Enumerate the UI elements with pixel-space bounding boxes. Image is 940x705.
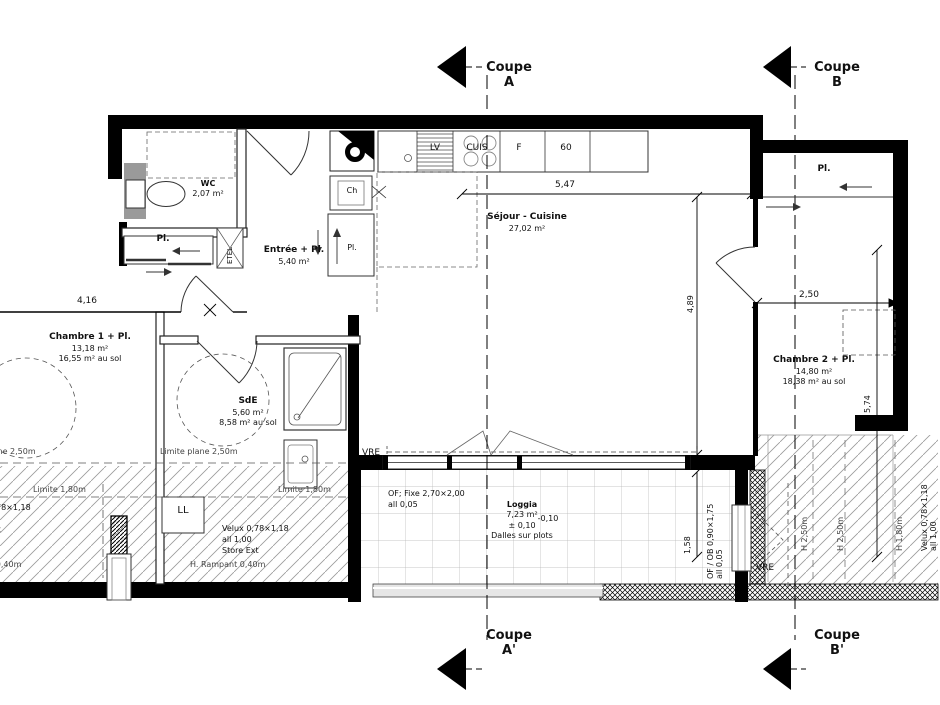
- vre-label-top: VRE: [356, 448, 386, 460]
- limit-plane-chambre1: Limite plane 2,50m: [0, 447, 36, 457]
- dim-4-89: 4,89: [686, 295, 695, 313]
- washing-machine-label: LL: [164, 504, 202, 517]
- rampant-mid: H. Rampant 0,40m: [190, 560, 265, 570]
- velux-note-mid: Velux 0,78×1,18 all 1,00 Store Ext: [222, 524, 289, 556]
- bay-window: [383, 431, 697, 470]
- dim-4-16: 4,16: [66, 296, 108, 308]
- side-window-note: OF / OB 0,90×1,75 all 0,05: [706, 504, 724, 579]
- floor-plan: Coupe A Coupe B Coupe A' Coupe B' WC 2,0…: [0, 0, 940, 705]
- section-arrow-icon: [763, 46, 791, 88]
- room-label-sde: SdE 5,60 m² 8,58 m² au sol: [188, 396, 308, 428]
- kitchen-label-cuis: CUIS: [459, 143, 495, 155]
- limit-180-mid: Limite 1,80m: [278, 485, 331, 495]
- loggia-rail: [373, 584, 603, 597]
- velux-post: [107, 516, 131, 600]
- section-label-b-top: Coupe B: [802, 61, 872, 91]
- drain-icon: [348, 145, 363, 160]
- velux-note-right: Velux 0,78×1,18 all 1,00: [920, 484, 938, 551]
- toilet-cistern-icon: [126, 180, 145, 208]
- section-arrow-icon: [763, 648, 791, 690]
- room-label-chambre2: Chambre 2 + Pl. 14,80 m² 18,38 m² au sol: [743, 355, 885, 387]
- kitchen-label-lv: LV: [425, 143, 445, 155]
- section-arrow-icon: [437, 648, 466, 690]
- velux-note-left: Velux 0,78×1,18 all 1,00 Store Ext: [0, 503, 31, 535]
- limit-plane-sde: Limite plane 2,50m: [160, 447, 238, 457]
- room-label-chambre1: Chambre 1 + Pl. 13,18 m² 16,55 m² au sol: [10, 332, 170, 364]
- room-label-wc: WC 2,07 m²: [168, 179, 248, 200]
- room-label-loggia: Loggia 7,23 m² ± 0,10 Dalles sur plots: [462, 500, 582, 542]
- closet-label-pl-entree: Pl.: [342, 243, 362, 253]
- closet-label-pl-right: Pl.: [812, 164, 836, 176]
- kitchen-label-f: F: [511, 143, 527, 155]
- arrow-right-icon: [793, 203, 801, 211]
- water-heater-label: Ch: [343, 186, 361, 196]
- etel-label: ETEL: [226, 247, 234, 264]
- loggia-level-note: -0,10: [533, 514, 563, 524]
- height-250-a: H 2,50m: [800, 517, 809, 551]
- dim-2-50: 2,50: [788, 290, 830, 302]
- dim-1-58: 1,58: [683, 536, 692, 554]
- section-arrow-icon: [437, 46, 466, 88]
- height-180: H 1,80m: [895, 517, 904, 551]
- limit-180-left: Limite 1,80m: [33, 485, 86, 495]
- room-label-entree: Entrée + Pl. 5,40 m²: [238, 245, 350, 267]
- dim-5-47: 5,47: [544, 180, 586, 192]
- room-label-sejour: Séjour - Cuisine 27,02 m²: [462, 212, 592, 234]
- dim-5-74: 5,74: [863, 395, 872, 413]
- arrow-left-icon: [839, 183, 847, 191]
- washbasin: [284, 440, 317, 488]
- bay-window-note: OF; Fixe 2,70×2,00 all 0,05: [388, 489, 465, 511]
- section-label-a-bottom: Coupe A': [474, 629, 544, 659]
- height-250-b: H 2,50m: [836, 517, 845, 551]
- kitchen-label-60: 60: [555, 143, 577, 155]
- water-unit: [330, 131, 374, 171]
- right-closet: [763, 183, 893, 211]
- arrow-right-icon: [164, 268, 172, 276]
- section-label-a-top: Coupe A: [474, 61, 544, 91]
- section-label-b-bottom: Coupe B': [802, 629, 872, 659]
- vre-label-right: VRE: [748, 563, 782, 575]
- closet-label-pl-left: Pl.: [150, 234, 176, 246]
- rampant-left: H. Rampant 0,40m: [0, 560, 21, 570]
